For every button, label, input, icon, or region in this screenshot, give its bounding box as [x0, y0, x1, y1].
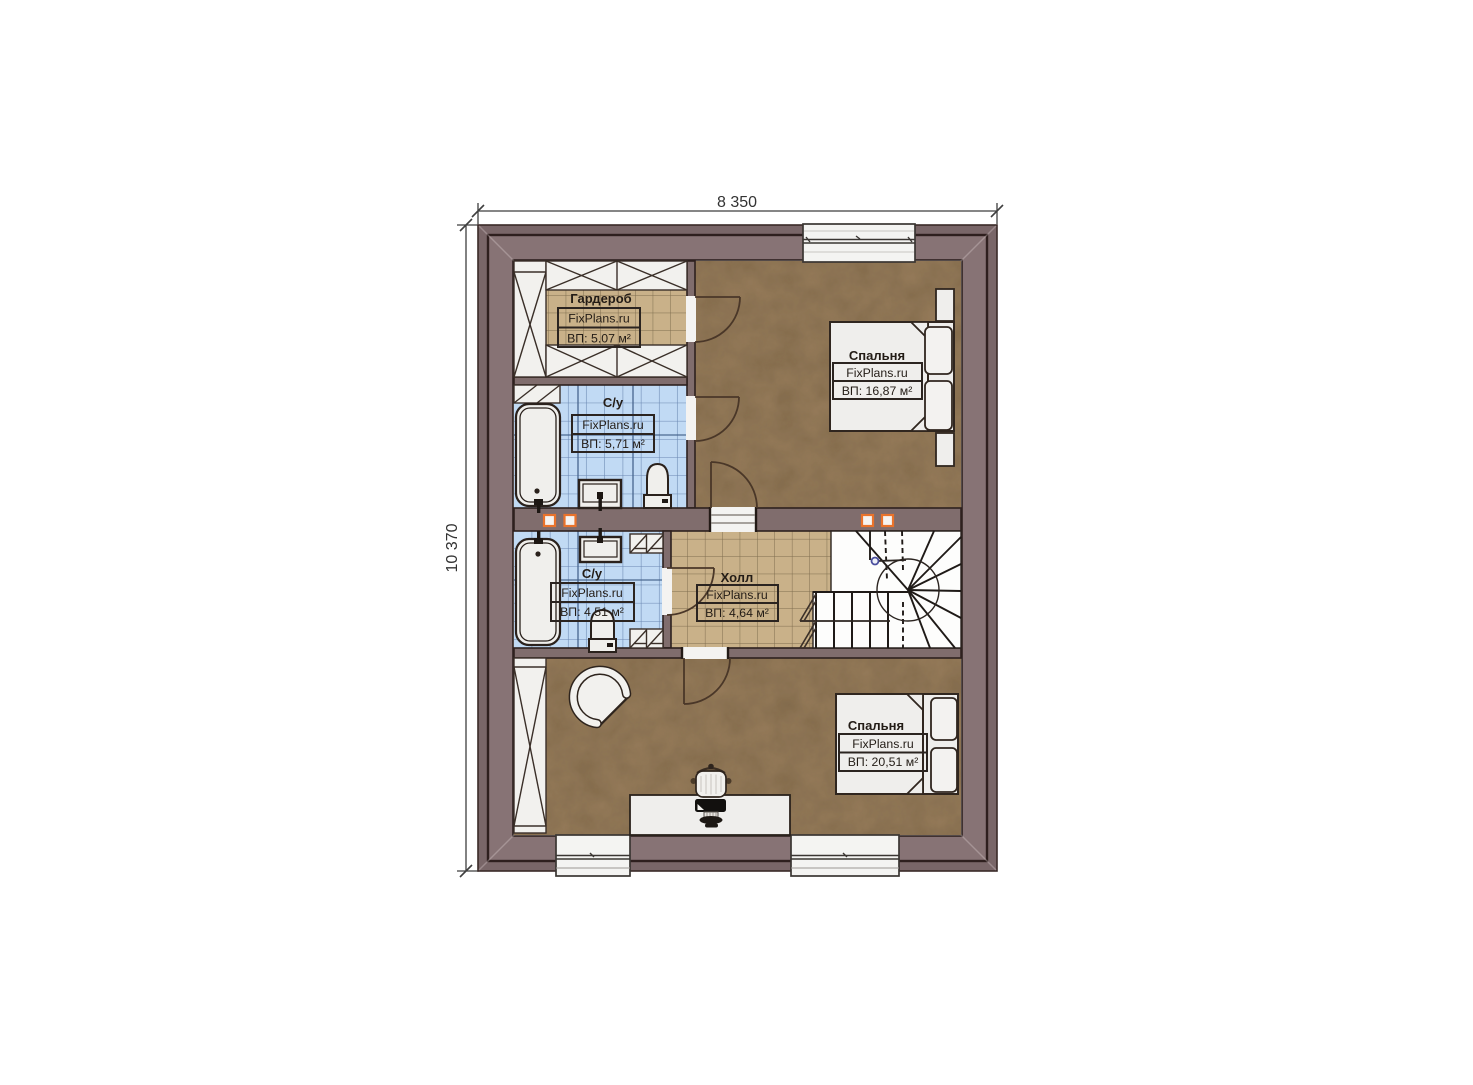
svg-text:8 350: 8 350	[717, 194, 757, 211]
svg-text:FixPlans.ru: FixPlans.ru	[706, 588, 768, 602]
svg-text:ВП: 16,87 м²: ВП: 16,87 м²	[842, 384, 913, 398]
svg-text:FixPlans.ru: FixPlans.ru	[561, 586, 623, 600]
svg-text:Спальня: Спальня	[849, 348, 905, 363]
svg-text:FixPlans.ru: FixPlans.ru	[846, 366, 908, 380]
svg-text:ВП: 5.07 м²: ВП: 5.07 м²	[567, 332, 631, 346]
svg-text:ВП: 4,64 м²: ВП: 4,64 м²	[705, 606, 769, 620]
svg-text:FixPlans.ru: FixPlans.ru	[568, 312, 630, 326]
svg-text:ВП: 4,51 м²: ВП: 4,51 м²	[560, 605, 624, 619]
svg-text:ВП: 20,51 м²: ВП: 20,51 м²	[848, 755, 919, 769]
svg-text:FixPlans.ru: FixPlans.ru	[582, 418, 644, 432]
svg-text:С/у: С/у	[603, 395, 624, 410]
svg-text:Спальня: Спальня	[848, 718, 904, 733]
svg-text:Холл: Холл	[721, 570, 754, 585]
svg-text:Гардероб: Гардероб	[570, 291, 631, 306]
svg-text:ВП: 5,71 м²: ВП: 5,71 м²	[581, 437, 645, 451]
svg-text:С/у: С/у	[582, 566, 603, 581]
svg-text:FixPlans.ru: FixPlans.ru	[852, 737, 914, 751]
svg-text:10 370: 10 370	[444, 523, 461, 572]
